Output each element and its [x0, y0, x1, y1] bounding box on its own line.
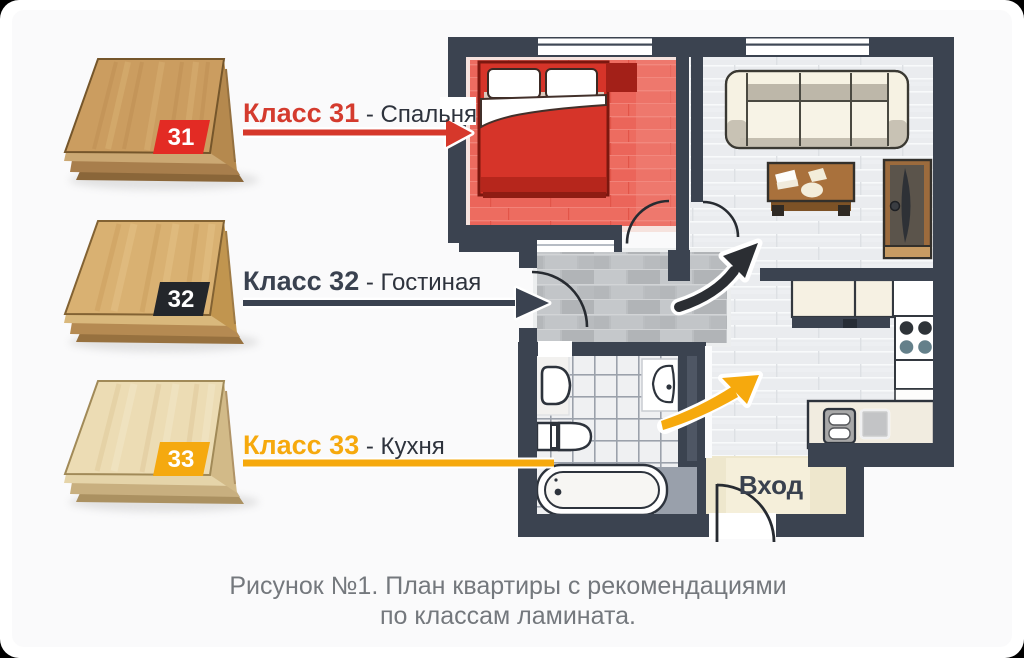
svg-text:31: 31	[168, 124, 195, 151]
svg-text:32: 32	[168, 286, 195, 313]
svg-text:Вход: Вход	[739, 470, 804, 500]
svg-text:по классам ламината.: по классам ламината.	[380, 602, 636, 630]
svg-text:Рисунок №1. План квартиры с ре: Рисунок №1. План квартиры с рекомендация…	[229, 572, 786, 600]
svg-text:Класс 33 - Кухня: Класс 33 - Кухня	[243, 430, 445, 460]
svg-text:Класс 31 - Спальня: Класс 31 - Спальня	[243, 98, 477, 128]
svg-text:33: 33	[168, 446, 195, 473]
svg-text:Класс 32 - Гостиная: Класс 32 - Гостиная	[243, 266, 481, 296]
